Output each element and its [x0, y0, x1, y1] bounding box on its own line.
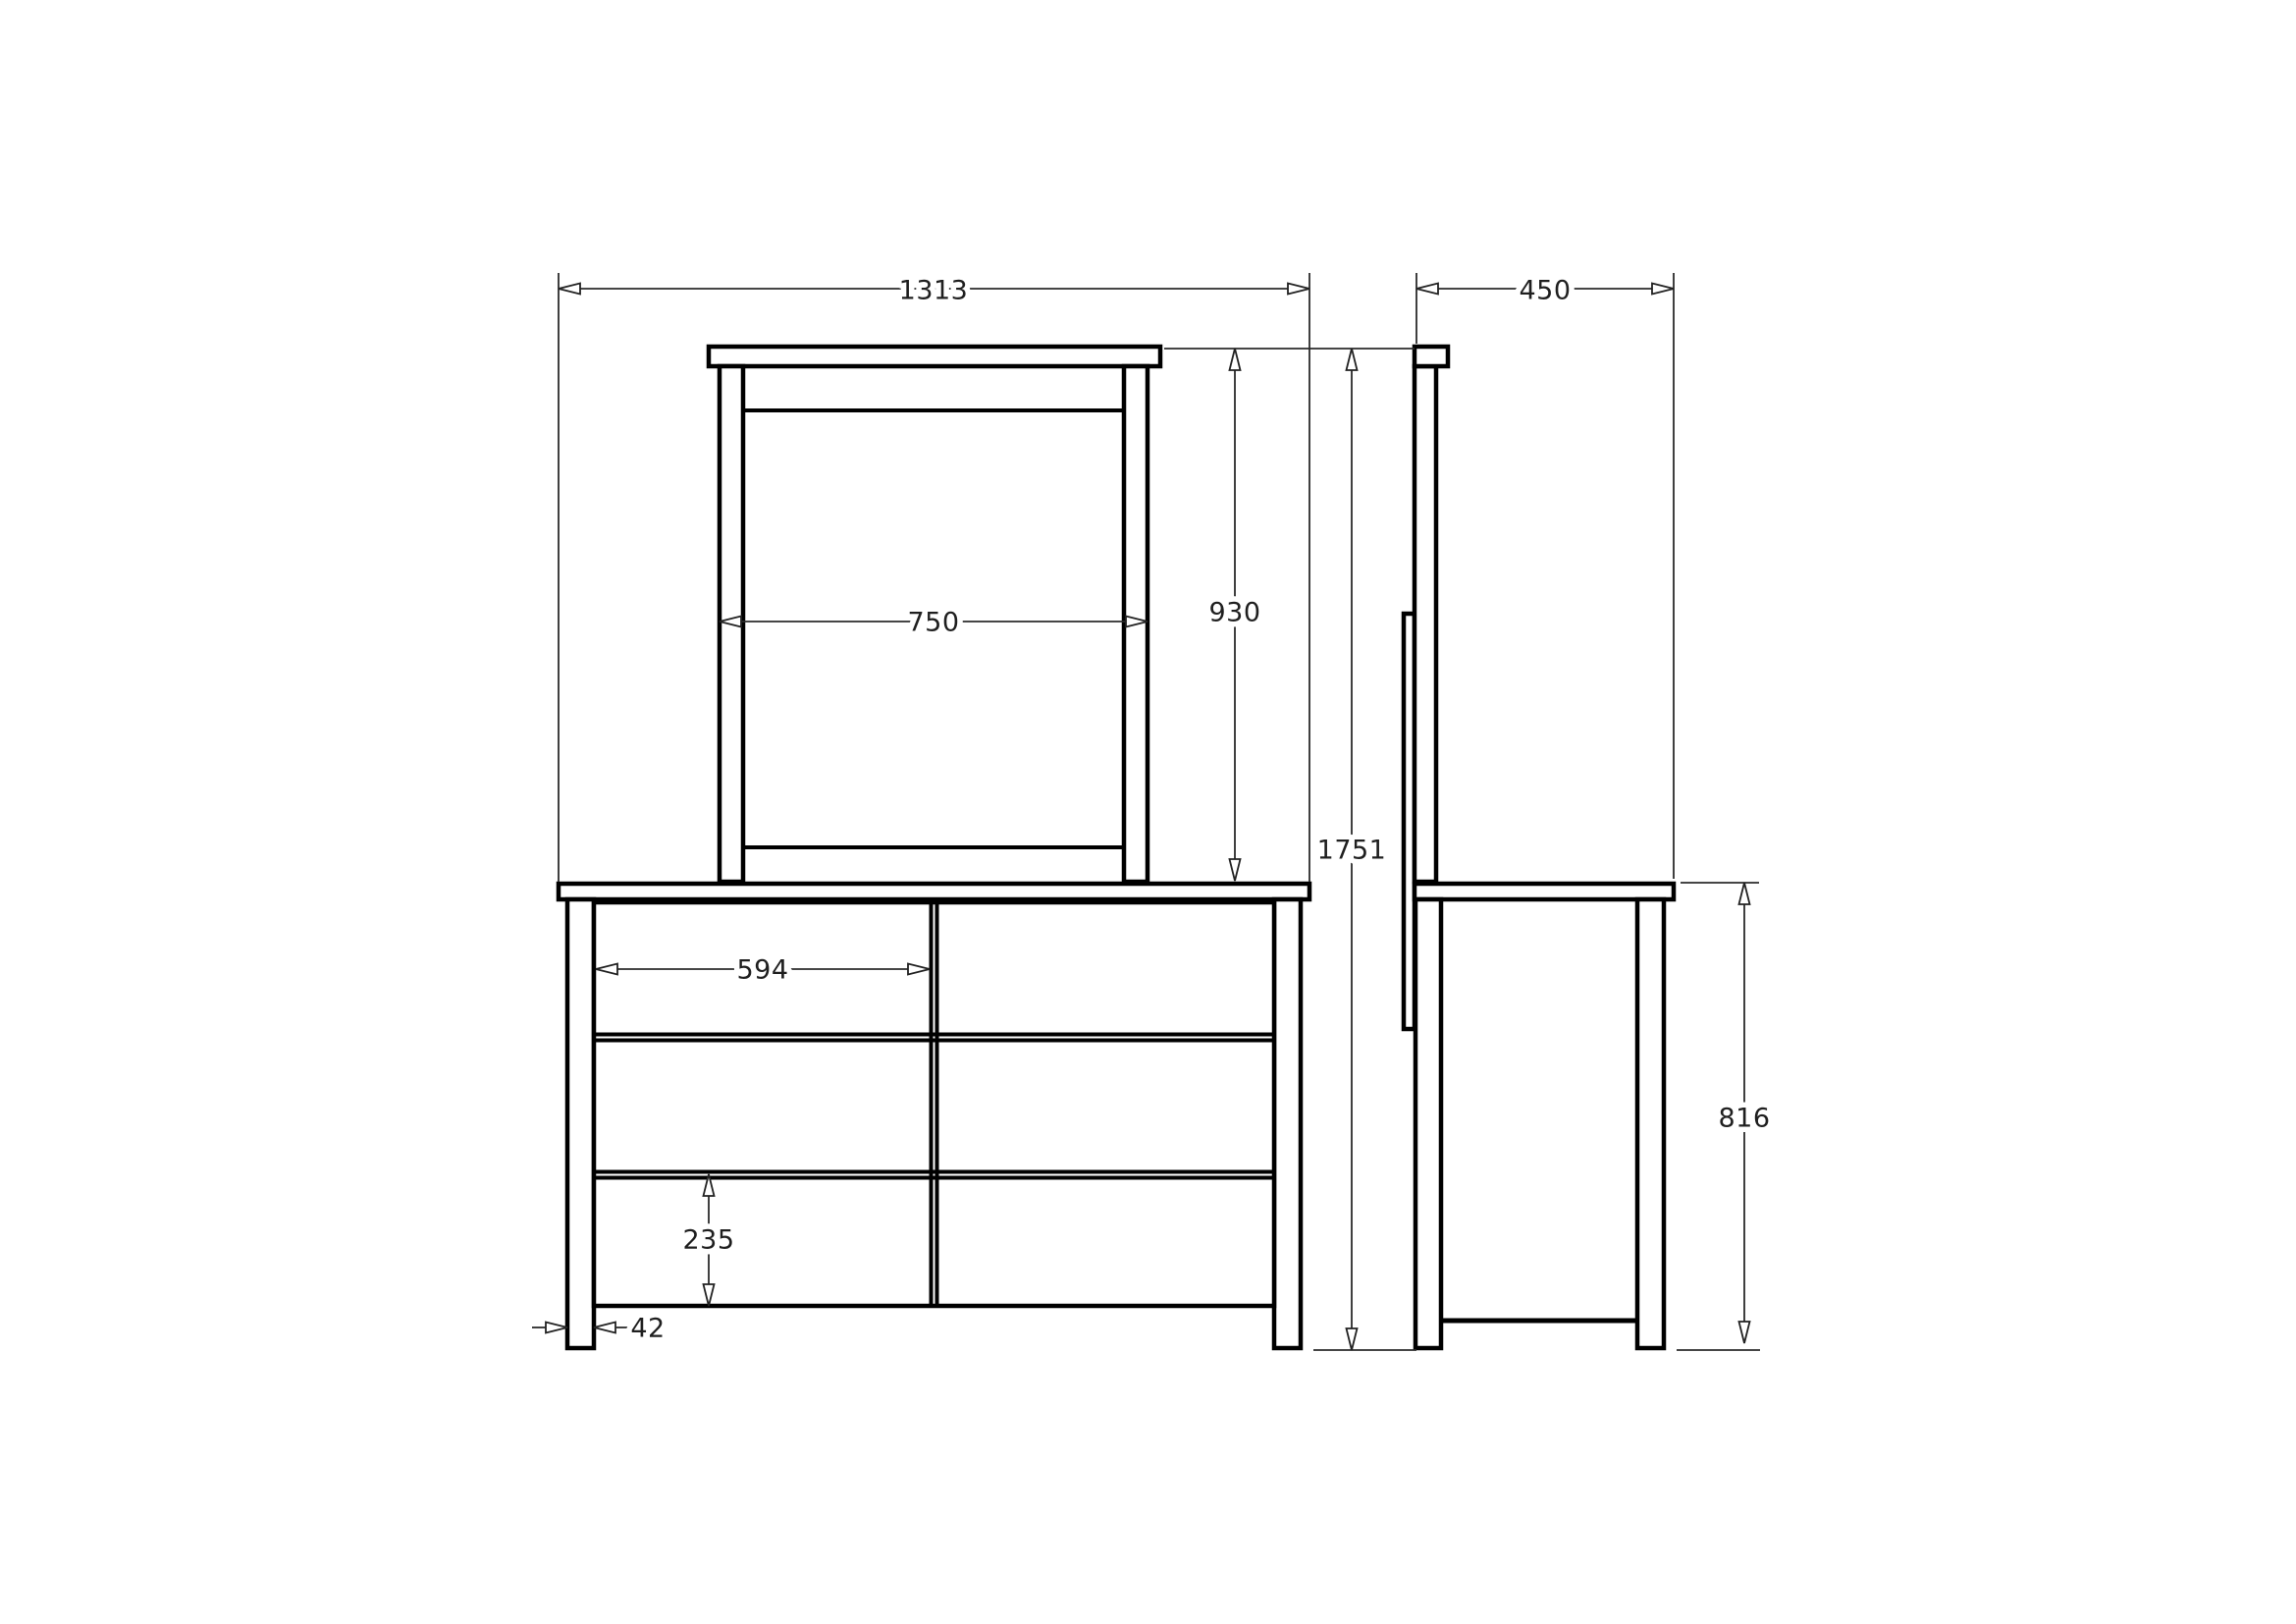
dresser-top-front	[559, 884, 1309, 899]
arrowhead-down-icon	[1739, 1322, 1750, 1343]
dim-drawer-width-label: 594	[736, 955, 788, 986]
dim-depth: 450	[1416, 273, 1674, 879]
arrowhead-up-icon	[1347, 349, 1358, 370]
arrowhead-right-icon	[1288, 284, 1309, 295]
arrowhead-left-icon	[1416, 284, 1438, 295]
dim-mirror-width-label: 750	[907, 608, 959, 638]
arrowhead-down-icon	[1230, 859, 1241, 881]
dim-depth-label: 450	[1519, 276, 1571, 306]
technical-drawing: 1313 450 750 930 175	[0, 0, 2296, 1624]
leg-side-front	[1637, 899, 1664, 1348]
dim-drawer-height-label: 235	[682, 1225, 734, 1256]
dim-mirror-height: 930	[1164, 349, 1415, 881]
mirror-cap-side	[1415, 347, 1448, 366]
dim-carcass-height: 816	[1677, 883, 1771, 1350]
dim-overall-height-label: 1751	[1317, 836, 1387, 866]
dim-mirror-height-label: 930	[1208, 598, 1260, 628]
mirror-cap	[709, 347, 1160, 366]
side-view	[1404, 347, 1674, 1348]
dim-overall-width-label: 1313	[899, 276, 969, 306]
dim-carcass-height-label: 816	[1718, 1104, 1770, 1134]
arrowhead-right-icon	[1652, 284, 1674, 295]
dim-leg-width-label: 42	[630, 1314, 665, 1344]
arrowhead-right-icon	[546, 1323, 567, 1333]
arrowhead-left-icon	[559, 284, 580, 295]
arrowhead-left-icon	[594, 1323, 615, 1333]
arrowhead-down-icon	[1347, 1328, 1358, 1350]
dim-overall-height: 1751	[1313, 349, 1416, 1350]
dresser-side	[1415, 884, 1674, 1348]
dim-mirror-width: 750	[720, 608, 1148, 638]
leg-front-right	[1274, 899, 1301, 1348]
mirror-board-side	[1415, 366, 1436, 882]
dresser-front	[559, 884, 1309, 1348]
dim-leg-width: 42	[532, 1314, 666, 1344]
leg-side-back	[1415, 899, 1441, 1348]
arrowhead-up-icon	[1230, 349, 1241, 370]
dresser-top-side	[1415, 884, 1674, 899]
leg-front-left	[567, 899, 594, 1348]
arrowhead-up-icon	[1739, 883, 1750, 904]
front-view	[559, 347, 1309, 1348]
drawing-canvas: 1313 450 750 930 175	[0, 0, 2296, 1624]
